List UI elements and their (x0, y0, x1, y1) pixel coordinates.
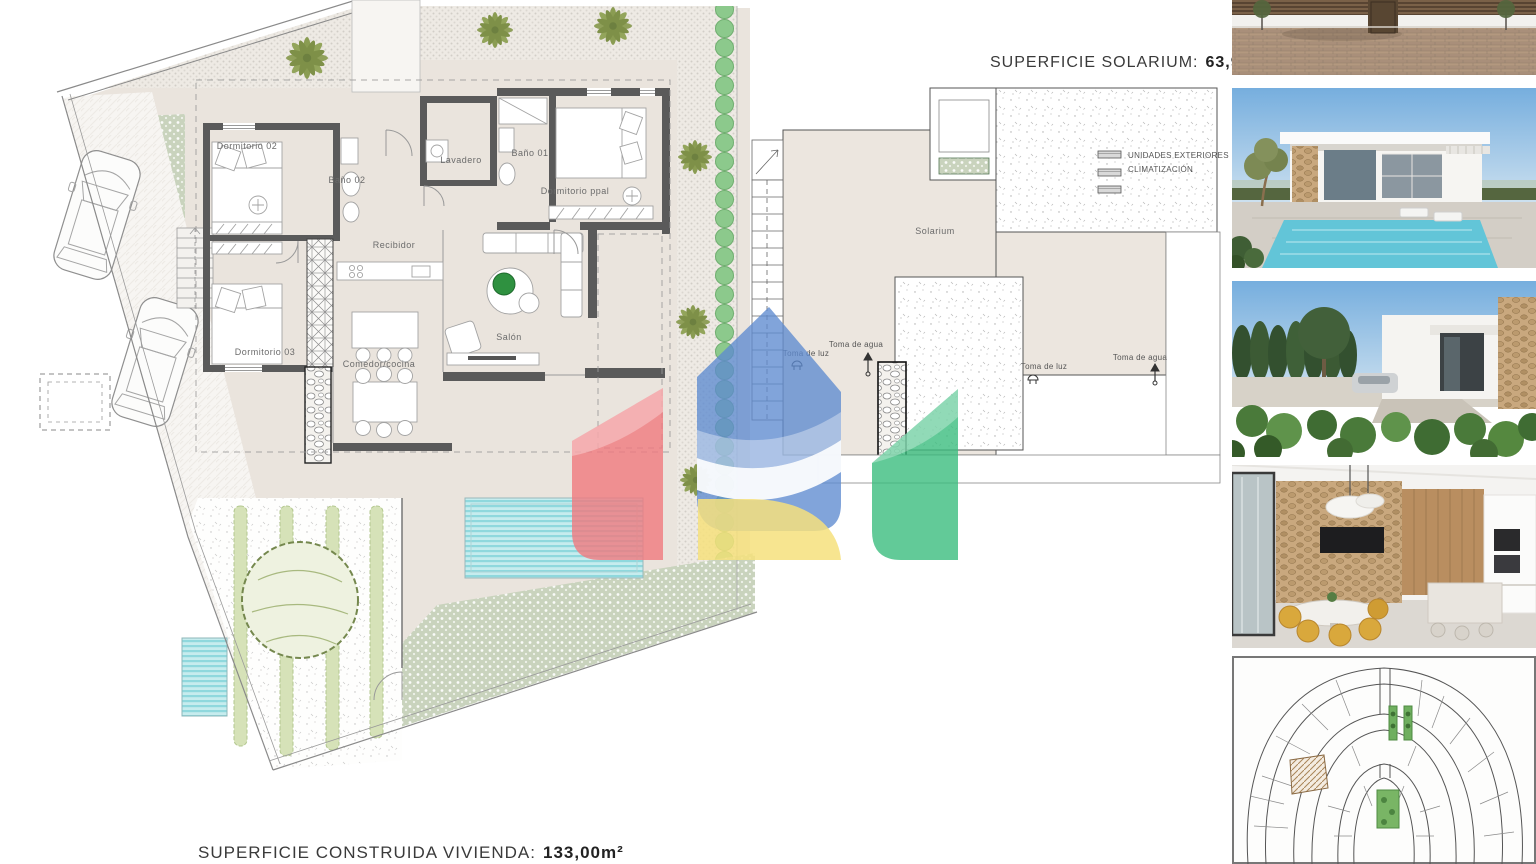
roof-area-center (895, 277, 1023, 450)
vivienda-section-title: SUPERFICIE CONSTRUIDA VIVIENDA:133,00m² (198, 843, 624, 863)
room-label-salon: Salón (496, 332, 522, 342)
vivienda-title-label: SUPERFICIE CONSTRUIDA VIVIENDA: (198, 843, 536, 862)
palm-tree-icon (477, 12, 513, 48)
garden-tree (242, 542, 358, 658)
plan-sheet: Dormitorio 02 Baño 02 Lavadero Baño 01 D… (0, 0, 1536, 864)
room-label-dormitorio-03: Dormitorio 03 (235, 347, 296, 357)
palm-tree-icon (678, 140, 712, 174)
palm-tree-icon (594, 7, 632, 45)
solarium-room-label: Solarium (915, 226, 955, 236)
photo-column (1232, 0, 1536, 864)
garden-hedge-row (234, 506, 247, 746)
site-plan: Dormitorio 02 Baño 02 Lavadero Baño 01 D… (40, 0, 757, 770)
room-label-lavadero: Lavadero (440, 155, 482, 165)
kitchen-interior-render-photo (1232, 465, 1536, 648)
solarium-title-label: SUPERFICIE SOLARIUM: (990, 54, 1198, 71)
hvac-units (1098, 151, 1121, 193)
light-point-label: Toma de luz (1021, 362, 1067, 371)
hvac-label-line1: UNIDADES EXTERIORES (1128, 151, 1229, 160)
lower-roof-band-right (1166, 232, 1220, 455)
lattice-planter (307, 239, 333, 367)
villa-pool-render-photo (1232, 88, 1536, 268)
room-label-comedor-cocina: Comedor/cocina (343, 359, 416, 369)
skylight-planter (939, 158, 989, 174)
water-point-label: Toma de agua (1113, 353, 1168, 362)
floor-plans-canvas: Dormitorio 02 Baño 02 Lavadero Baño 01 D… (0, 0, 1232, 864)
salon-plant (493, 273, 515, 295)
urbanization-site-plan (1232, 656, 1536, 864)
highlighted-plot (1290, 755, 1328, 794)
garden (182, 498, 402, 770)
room-label-dormitorio-ppal: Dormitorio ppal (541, 186, 610, 196)
street-facade-photo (1232, 0, 1536, 75)
roof-area-hvac (996, 88, 1217, 232)
garden-hedge-row (370, 506, 383, 738)
entry-walkway (352, 0, 420, 92)
water-point-label: Toma de agua (829, 340, 884, 349)
palm-tree-icon (676, 305, 710, 339)
light-point-icon (1028, 375, 1038, 384)
room-label-bano-02: Baño 02 (328, 175, 365, 185)
palm-tree-icon (286, 37, 328, 79)
villa-garden-render-photo (1232, 281, 1536, 457)
garden-water-feature (182, 638, 227, 716)
green-plot (1377, 790, 1399, 828)
solarium-section-title: SUPERFICIE SOLARIUM:63,94m² (990, 54, 1272, 72)
hvac-label-line2: CLIMATIZACIÓN (1128, 165, 1193, 174)
vivienda-title-value: 133,00m² (543, 843, 624, 862)
room-label-dormitorio-02: Dormitorio 02 (217, 141, 278, 151)
carport-dashed-inner (48, 382, 102, 422)
room-label-recibidor: Recibidor (373, 240, 416, 250)
stone-planter (305, 367, 331, 463)
room-label-bano-01: Baño 01 (511, 148, 548, 158)
